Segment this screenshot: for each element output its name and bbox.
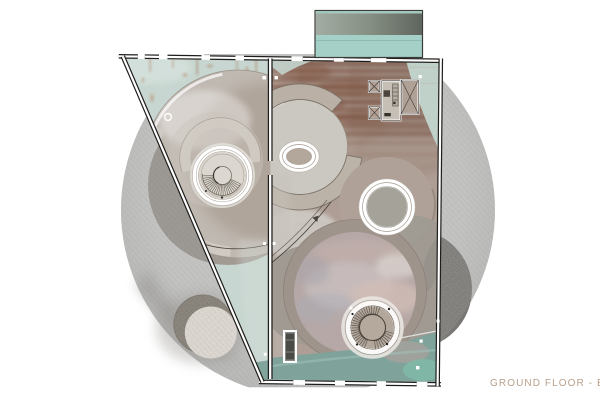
svg-text:GROUND FLOOR - B: GROUND FLOOR - B bbox=[490, 378, 600, 389]
